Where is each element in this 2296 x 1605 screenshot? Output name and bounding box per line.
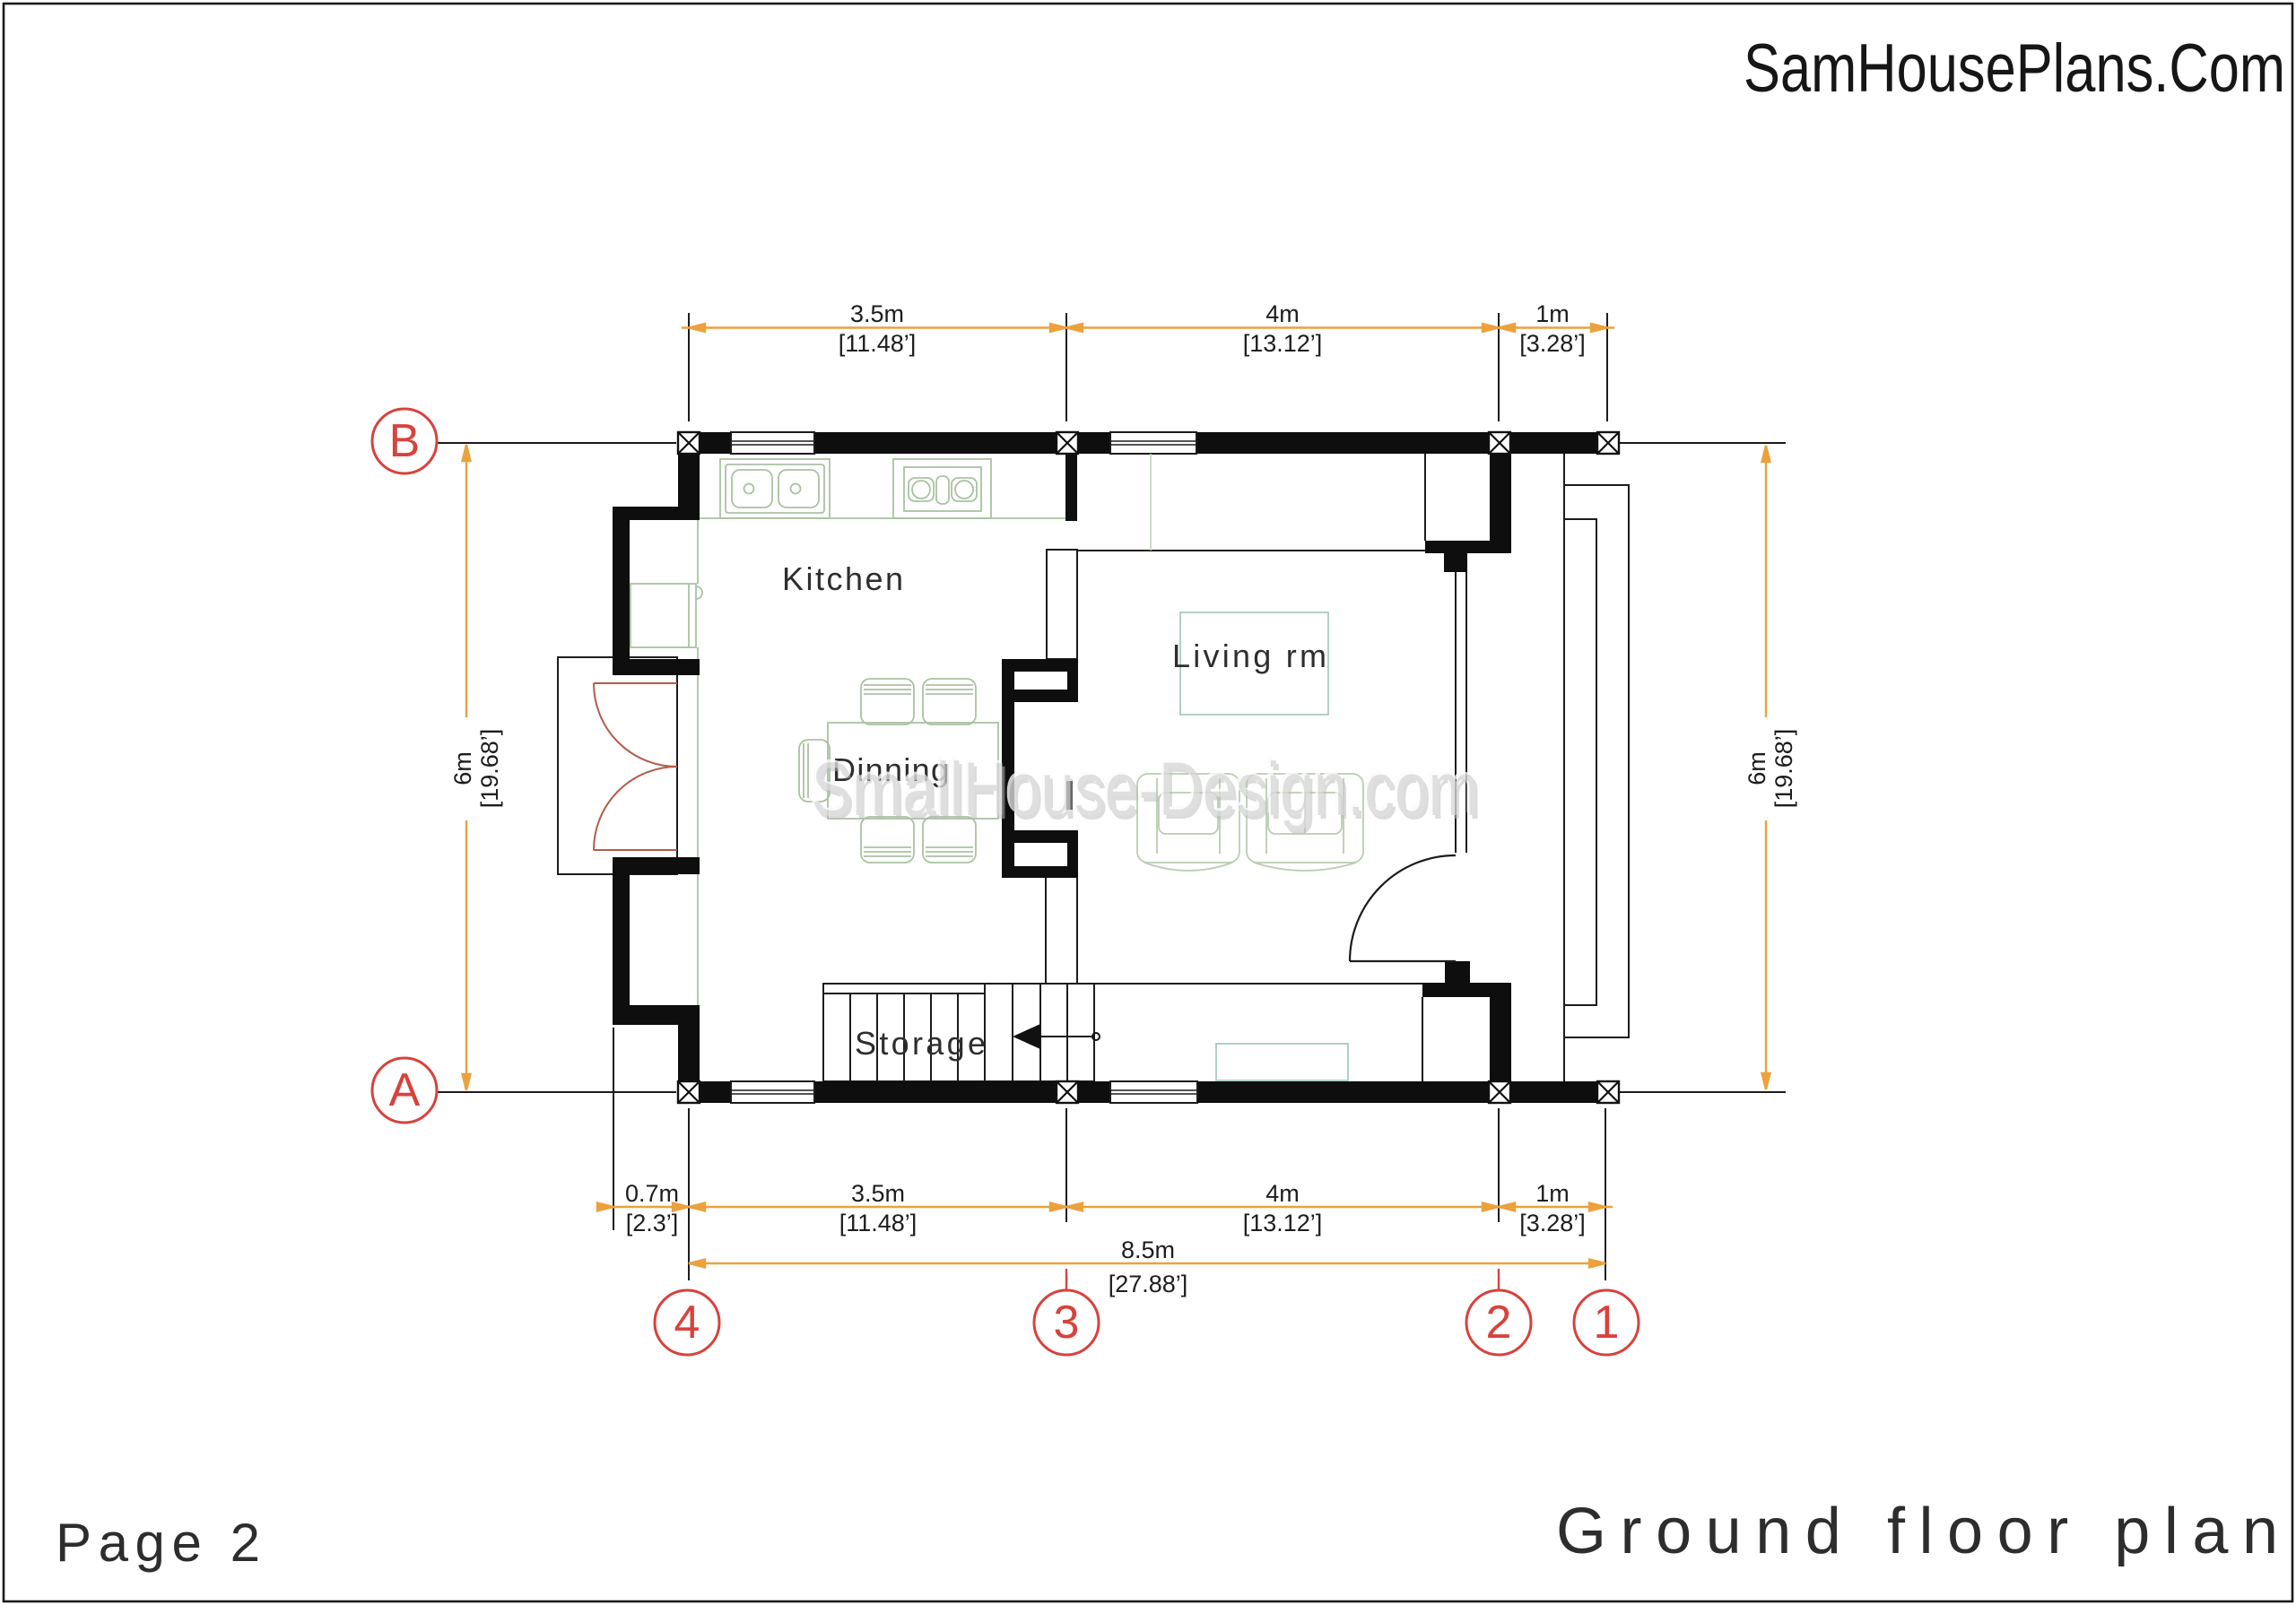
svg-text:3.5m: 3.5m (850, 300, 904, 327)
svg-text:Living rm: Living rm (1172, 638, 1326, 674)
svg-text:[3.28’]: [3.28’] (1519, 1210, 1586, 1236)
svg-text:4: 4 (674, 1297, 700, 1349)
svg-text:[3.28’]: [3.28’] (1519, 330, 1586, 357)
svg-text:Page 2: Page 2 (56, 1513, 260, 1573)
svg-text:1: 1 (1594, 1297, 1620, 1349)
svg-text:2: 2 (1486, 1297, 1512, 1349)
svg-text:[11.48’]: [11.48’] (839, 330, 917, 357)
svg-text:6m: 6m (1744, 751, 1770, 785)
svg-text:[11.48’]: [11.48’] (839, 1210, 918, 1236)
svg-text:[27.88’]: [27.88’] (1109, 1271, 1188, 1297)
svg-text:1m: 1m (1535, 1180, 1570, 1207)
svg-text:[13.12’]: [13.12’] (1243, 1210, 1323, 1236)
svg-text:4m: 4m (1265, 1180, 1300, 1207)
svg-text:SmallHouse-Design.com: SmallHouse-Design.com (812, 747, 1479, 831)
svg-text:[19.68’]: [19.68’] (476, 729, 503, 809)
svg-text:3.5m: 3.5m (851, 1180, 905, 1207)
svg-text:A: A (389, 1064, 421, 1116)
svg-text:4m: 4m (1265, 300, 1300, 327)
svg-text:1m: 1m (1535, 300, 1570, 327)
svg-text:SamHousePlans.Com: SamHousePlans.Com (1744, 30, 2285, 107)
svg-text:[19.68’]: [19.68’] (1770, 729, 1797, 809)
svg-text:6m: 6m (449, 751, 476, 785)
svg-text:0.7m: 0.7m (625, 1180, 679, 1207)
svg-text:[13.12’]: [13.12’] (1243, 330, 1323, 357)
svg-text:8.5m: 8.5m (1121, 1236, 1175, 1263)
svg-text:B: B (389, 415, 421, 467)
svg-text:[2.3’]: [2.3’] (626, 1210, 679, 1236)
svg-text:3: 3 (1054, 1297, 1080, 1349)
